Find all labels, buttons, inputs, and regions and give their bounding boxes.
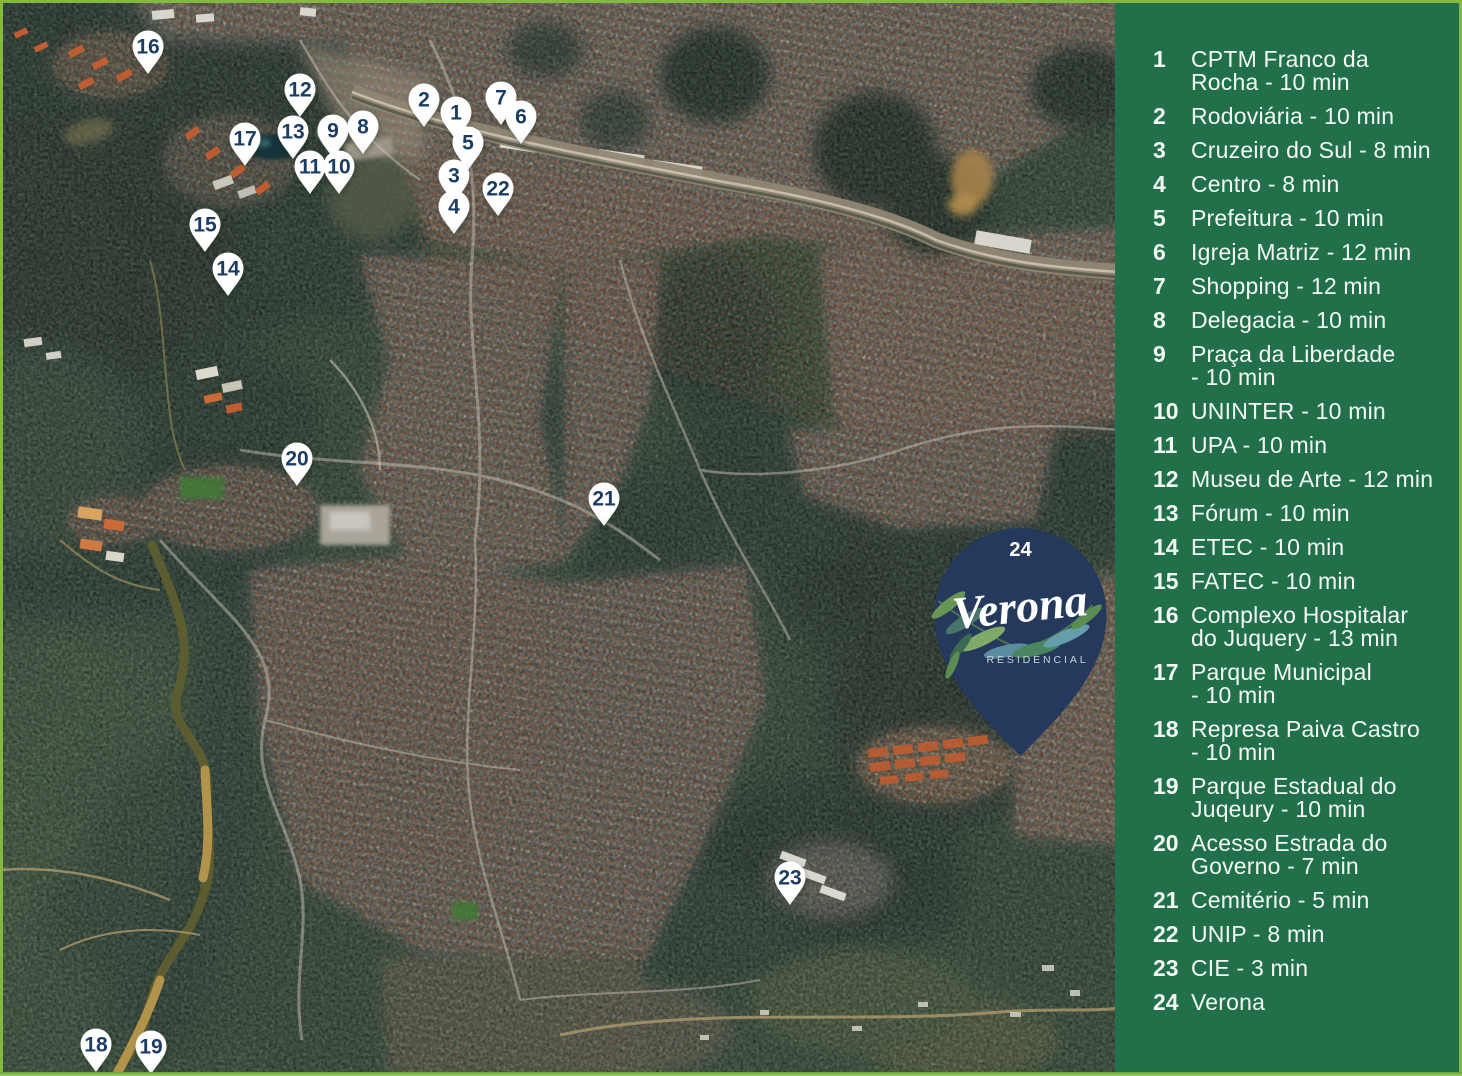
svg-text:15: 15 xyxy=(193,214,217,237)
svg-text:19: 19 xyxy=(139,1036,162,1059)
svg-text:11: 11 xyxy=(299,156,322,179)
svg-text:17: 17 xyxy=(233,128,256,151)
svg-text:14: 14 xyxy=(216,258,240,281)
svg-text:1: 1 xyxy=(450,102,462,125)
svg-text:9: 9 xyxy=(327,120,339,143)
svg-text:21: 21 xyxy=(592,488,616,511)
svg-text:8: 8 xyxy=(357,116,369,139)
svg-text:18: 18 xyxy=(84,1034,108,1057)
svg-text:22: 22 xyxy=(486,178,509,201)
svg-text:20: 20 xyxy=(285,448,308,471)
svg-text:2: 2 xyxy=(418,89,430,112)
svg-text:6: 6 xyxy=(515,106,527,129)
svg-text:16: 16 xyxy=(136,36,159,59)
svg-text:4: 4 xyxy=(448,196,460,219)
svg-text:3: 3 xyxy=(448,165,460,188)
svg-text:13: 13 xyxy=(281,121,304,144)
svg-text:7: 7 xyxy=(495,87,507,110)
svg-text:12: 12 xyxy=(288,79,311,102)
svg-text:5: 5 xyxy=(462,132,474,155)
svg-text:RESIDENCIAL: RESIDENCIAL xyxy=(987,654,1089,666)
svg-text:23: 23 xyxy=(778,867,801,890)
svg-text:10: 10 xyxy=(327,156,350,179)
svg-text:24: 24 xyxy=(1009,539,1032,561)
